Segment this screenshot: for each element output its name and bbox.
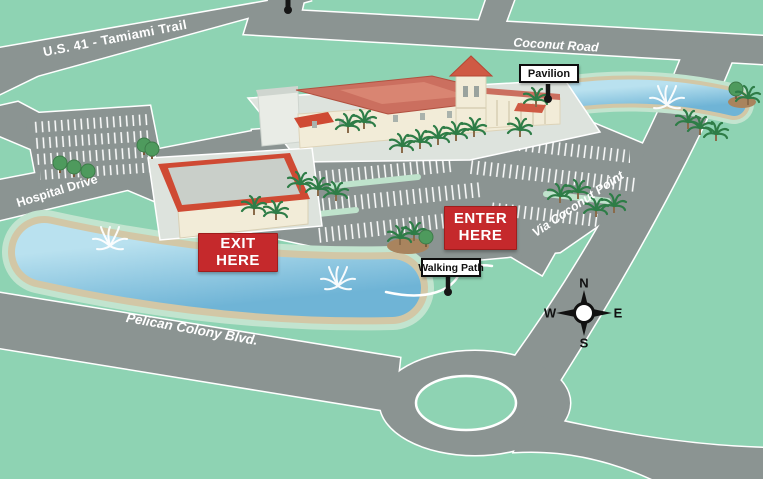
compass-west-label: W [544,306,556,321]
enter-here-sign: ENTER HERE [444,206,517,250]
pavilion-callout: Pavilion [519,64,579,83]
exit-here-sign: EXIT HERE [198,233,278,272]
enter-sign-line1: ENTER [445,211,516,228]
roundabout-island [416,376,516,430]
building-left-hall [158,153,310,238]
walking-path-callout: Walking Path [421,258,481,277]
exit-sign-line2: HERE [199,253,277,270]
enter-sign-line2: HERE [445,228,516,245]
compass-north-label: N [579,276,588,291]
compass-south-label: S [580,336,589,351]
venue-map: U.S. 41 - Tamiami Trail Coconut Road Hos… [0,0,763,479]
compass-east-label: E [614,306,623,321]
map-artwork [0,0,763,479]
exit-sign-line1: EXIT [199,236,277,253]
